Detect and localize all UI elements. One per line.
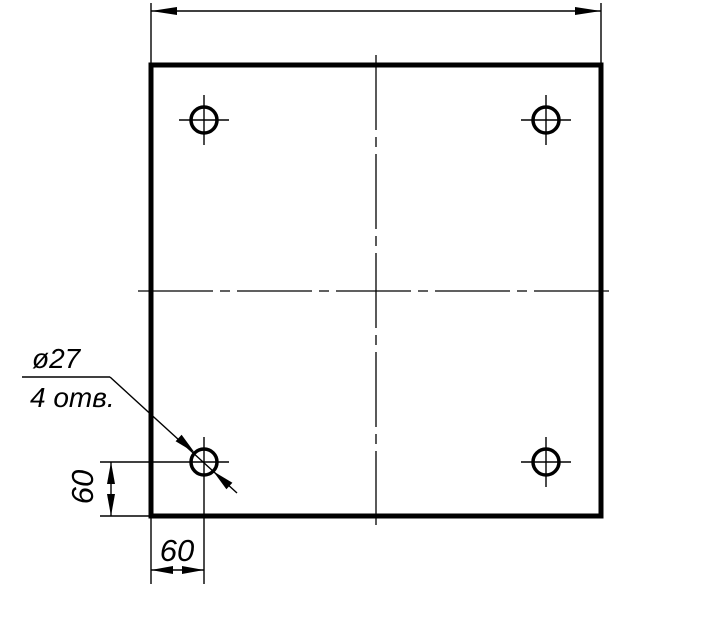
dimension-value-horizontal-60: 60	[160, 533, 194, 568]
drawing-canvas: 60 60 ø27 4 отв.	[0, 0, 713, 631]
drawing-sheet: 60 60 ø27 4 отв.	[0, 0, 713, 631]
hole-count-label: 4 отв.	[30, 382, 115, 413]
paper-background	[0, 0, 713, 631]
dimension-value-vertical-60: 60	[65, 470, 100, 504]
hole-diameter-label: ø27	[32, 343, 82, 374]
